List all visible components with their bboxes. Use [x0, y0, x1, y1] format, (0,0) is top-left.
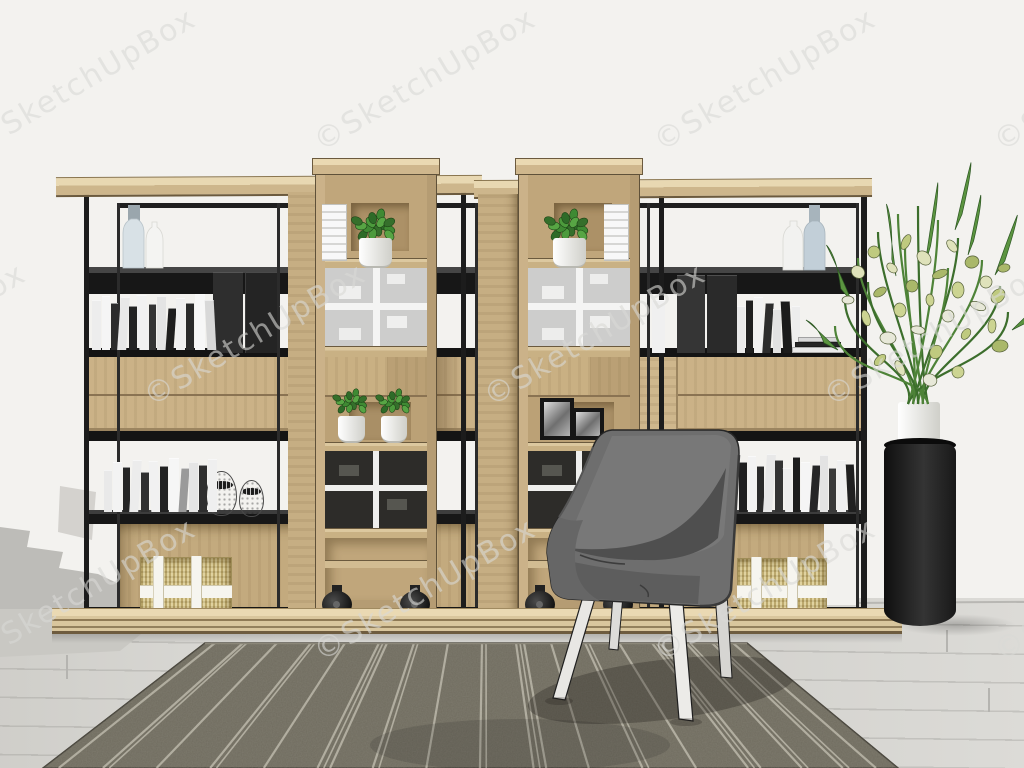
watermark-text: ©SketchUpBox — [648, 511, 883, 669]
watermark-text: ©SketchUpBox — [0, 511, 202, 669]
watermark-text: ©SketchUpBox — [308, 511, 543, 669]
watermark-text: ©SketchUpBox — [988, 1, 1024, 159]
watermark-text: ©SketchUpBox — [0, 256, 32, 414]
watermark-text: ©SketchUpBox — [648, 1, 883, 159]
rendered-scene: ©SketchUpBox©SketchUpBox©SketchUpBox©Ske… — [0, 0, 1024, 768]
watermark-text: ©SketchUpBox — [988, 511, 1024, 669]
watermark-text: ©SketchUpBox — [138, 256, 373, 414]
watermark-text: ©SketchUpBox — [0, 1, 202, 159]
watermark-text: ©SketchUpBox — [478, 256, 713, 414]
watermark-text: ©SketchUpBox — [818, 256, 1024, 414]
watermark-text: ©SketchUpBox — [308, 1, 543, 159]
watermark-layer: ©SketchUpBox©SketchUpBox©SketchUpBox©Ske… — [0, 0, 1024, 768]
